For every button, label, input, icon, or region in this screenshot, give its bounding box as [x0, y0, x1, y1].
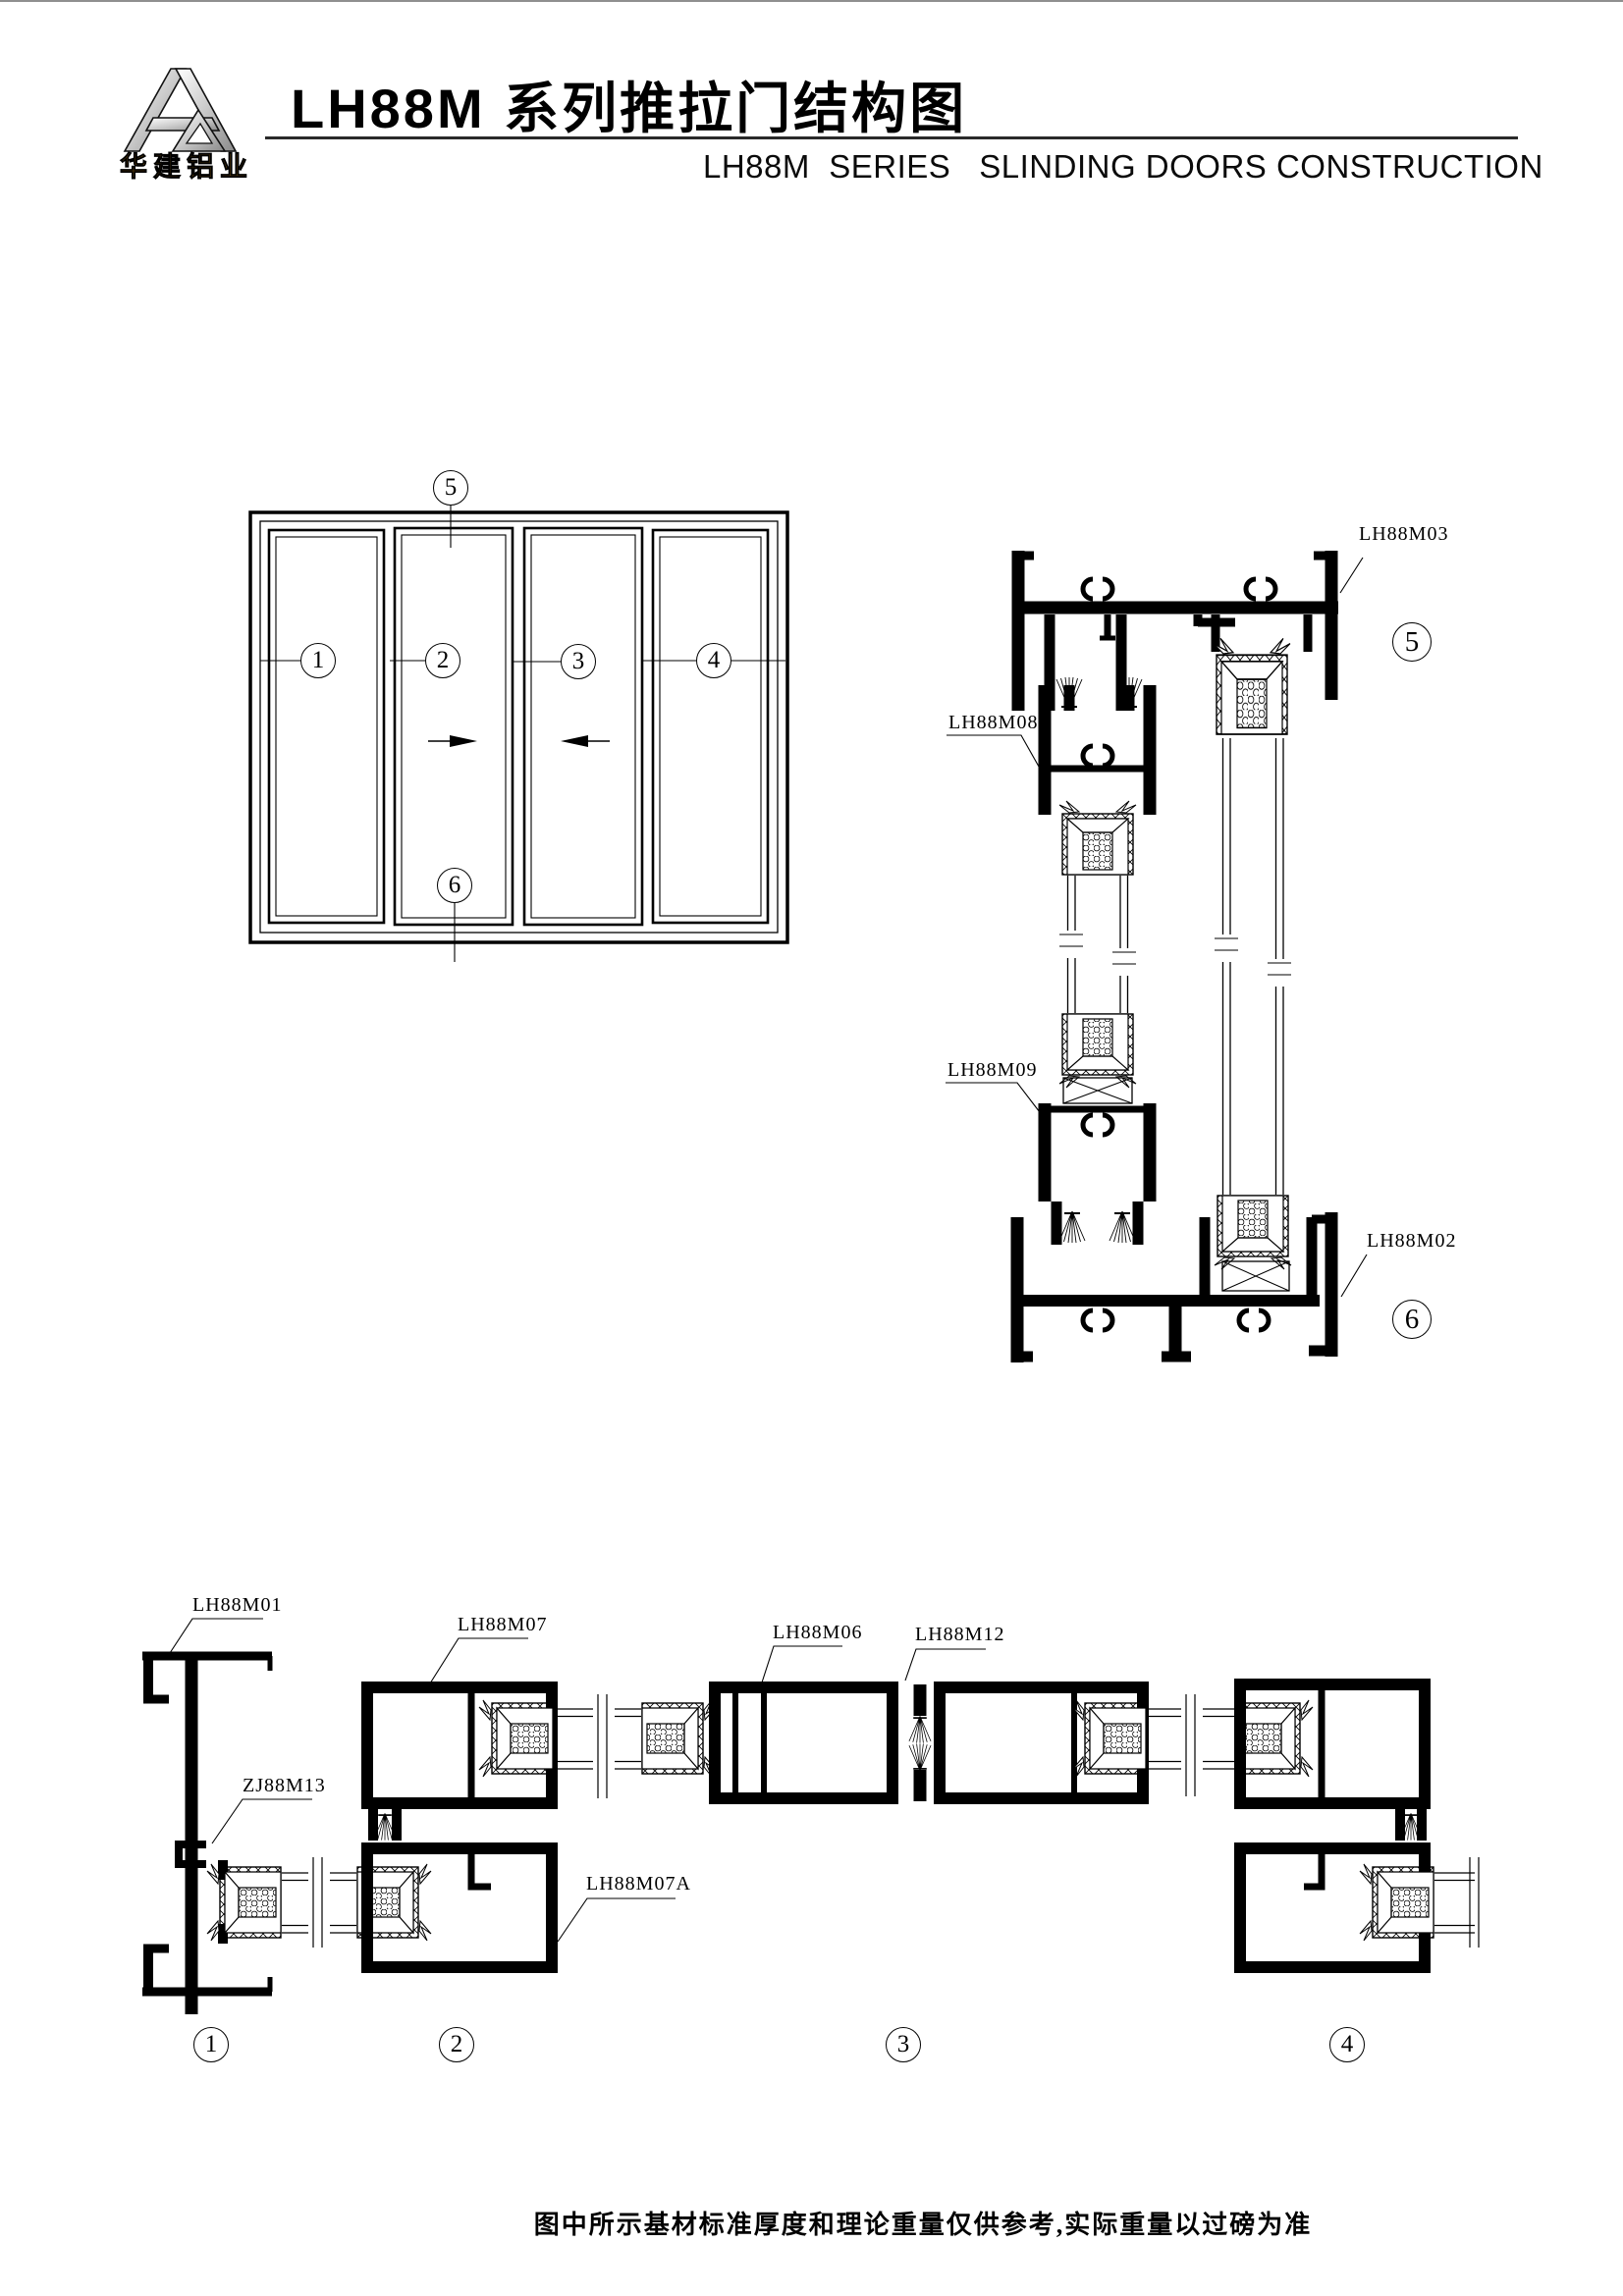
label-head-profile: LH88M03: [1359, 523, 1448, 546]
head-profile: [1012, 551, 1338, 711]
horizontal-section-drawing: [142, 1656, 1479, 2014]
balloon-sill: 6: [437, 868, 472, 903]
drawing-sheet: 华建铝业 LH88M 系列推拉门结构图 LH88M SERIES SLINDIN…: [0, 0, 1623, 2296]
mid-frame: [715, 1684, 1143, 1801]
footer-note: 图中所示基材标准厚度和理论重量仅供参考,实际重量以过磅为准: [530, 2205, 1316, 2241]
slide-direction-arrows: [428, 735, 610, 747]
vertical-section-drawing: [1011, 551, 1338, 1362]
label-corner-bracket: ZJ88M13: [243, 1775, 326, 1797]
panel3-glazing: [1072, 1694, 1313, 1796]
label-mid-rail: LH88M09: [947, 1059, 1037, 1082]
balloon-panel-1: 1: [300, 643, 336, 678]
balloon-section-1: 1: [193, 2027, 229, 2062]
balloon-panel-3: 3: [561, 644, 596, 679]
jamb-profile: [142, 1656, 272, 2014]
balloon-panel-4: 4: [696, 643, 731, 678]
label-stile-lower: LH88M07A: [586, 1873, 691, 1896]
balloon-panel-2: 2: [425, 643, 460, 678]
balloon-section-4: 4: [1329, 2027, 1365, 2062]
panel4-glazing: [1360, 1857, 1479, 1948]
balloon-section-sill: 6: [1392, 1300, 1432, 1339]
cad-drawing: [0, 0, 1623, 2296]
balloon-section-3: 3: [886, 2027, 921, 2062]
label-sill-profile: LH88M02: [1367, 1230, 1456, 1253]
label-stile-upper: LH88M07: [458, 1614, 547, 1636]
panel2-glazing: [554, 1694, 716, 1798]
sash-section-column: [1045, 677, 1150, 1245]
label-top-rail: LH88M08: [948, 712, 1038, 734]
balloon-head: 5: [433, 470, 468, 506]
panel2-stile-box: [367, 1687, 553, 1803]
fixed-glass-column: [1214, 638, 1291, 1291]
label-mid-frame: LH88M06: [773, 1622, 862, 1644]
interlock-1-2: [373, 1809, 397, 1841]
balloon-section-2: 2: [439, 2027, 474, 2062]
balloon-section-head: 5: [1392, 622, 1432, 662]
elevation-drawing: [250, 506, 787, 962]
label-interlock: LH88M12: [915, 1624, 1004, 1646]
interlock-3-4: [1400, 1809, 1422, 1841]
label-jamb: LH88M01: [192, 1594, 282, 1617]
panel1-glazing: [207, 1857, 431, 1948]
balloon-leader-lines: [260, 506, 785, 962]
